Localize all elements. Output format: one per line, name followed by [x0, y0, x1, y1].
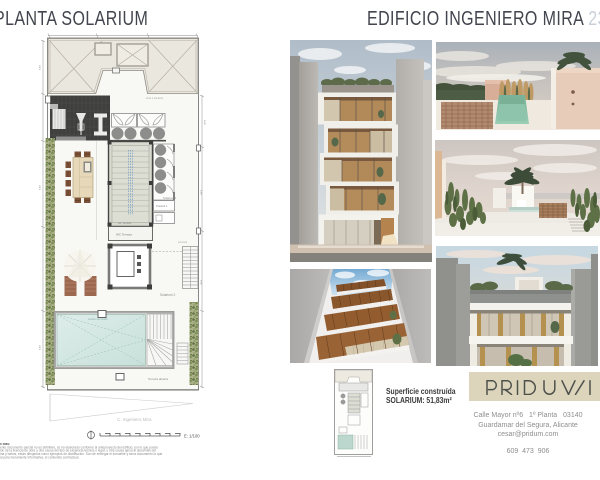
svg-text:Solarium 1: Solarium 1	[163, 196, 177, 200]
svg-text:x.xx: x.xx	[200, 280, 203, 285]
svg-text:x.xx: x.xx	[39, 185, 42, 190]
svg-text:xxx xxxx: xxx xxxx	[178, 241, 188, 244]
svg-text:C. Ingeniero Mira: C. Ingeniero Mira	[117, 417, 152, 422]
svg-text:x.xx: x.xx	[39, 65, 42, 70]
svg-text:Solarium 2: Solarium 2	[160, 293, 175, 297]
svg-text:E: 1/100: E: 1/100	[184, 434, 200, 439]
svg-text:xxxxxx xxx xxxxx: xxxxxx xxx xxxxx	[88, 318, 108, 321]
svg-text:Terraza abierta: Terraza abierta	[148, 377, 168, 381]
svg-text:WC Terraza: WC Terraza	[116, 233, 132, 237]
svg-text:x.xx: x.xx	[200, 190, 203, 195]
svg-text:x.xx: x.xx	[39, 345, 42, 350]
svg-text:xxxx x xxxxxxx: xxxx x xxxxxxx	[146, 97, 164, 100]
svg-text:x.xx: x.xx	[203, 120, 206, 125]
svg-text:Pradera 1: Pradera 1	[156, 204, 168, 208]
svg-text:Alt. Terrado: Alt. Terrado	[118, 221, 132, 225]
